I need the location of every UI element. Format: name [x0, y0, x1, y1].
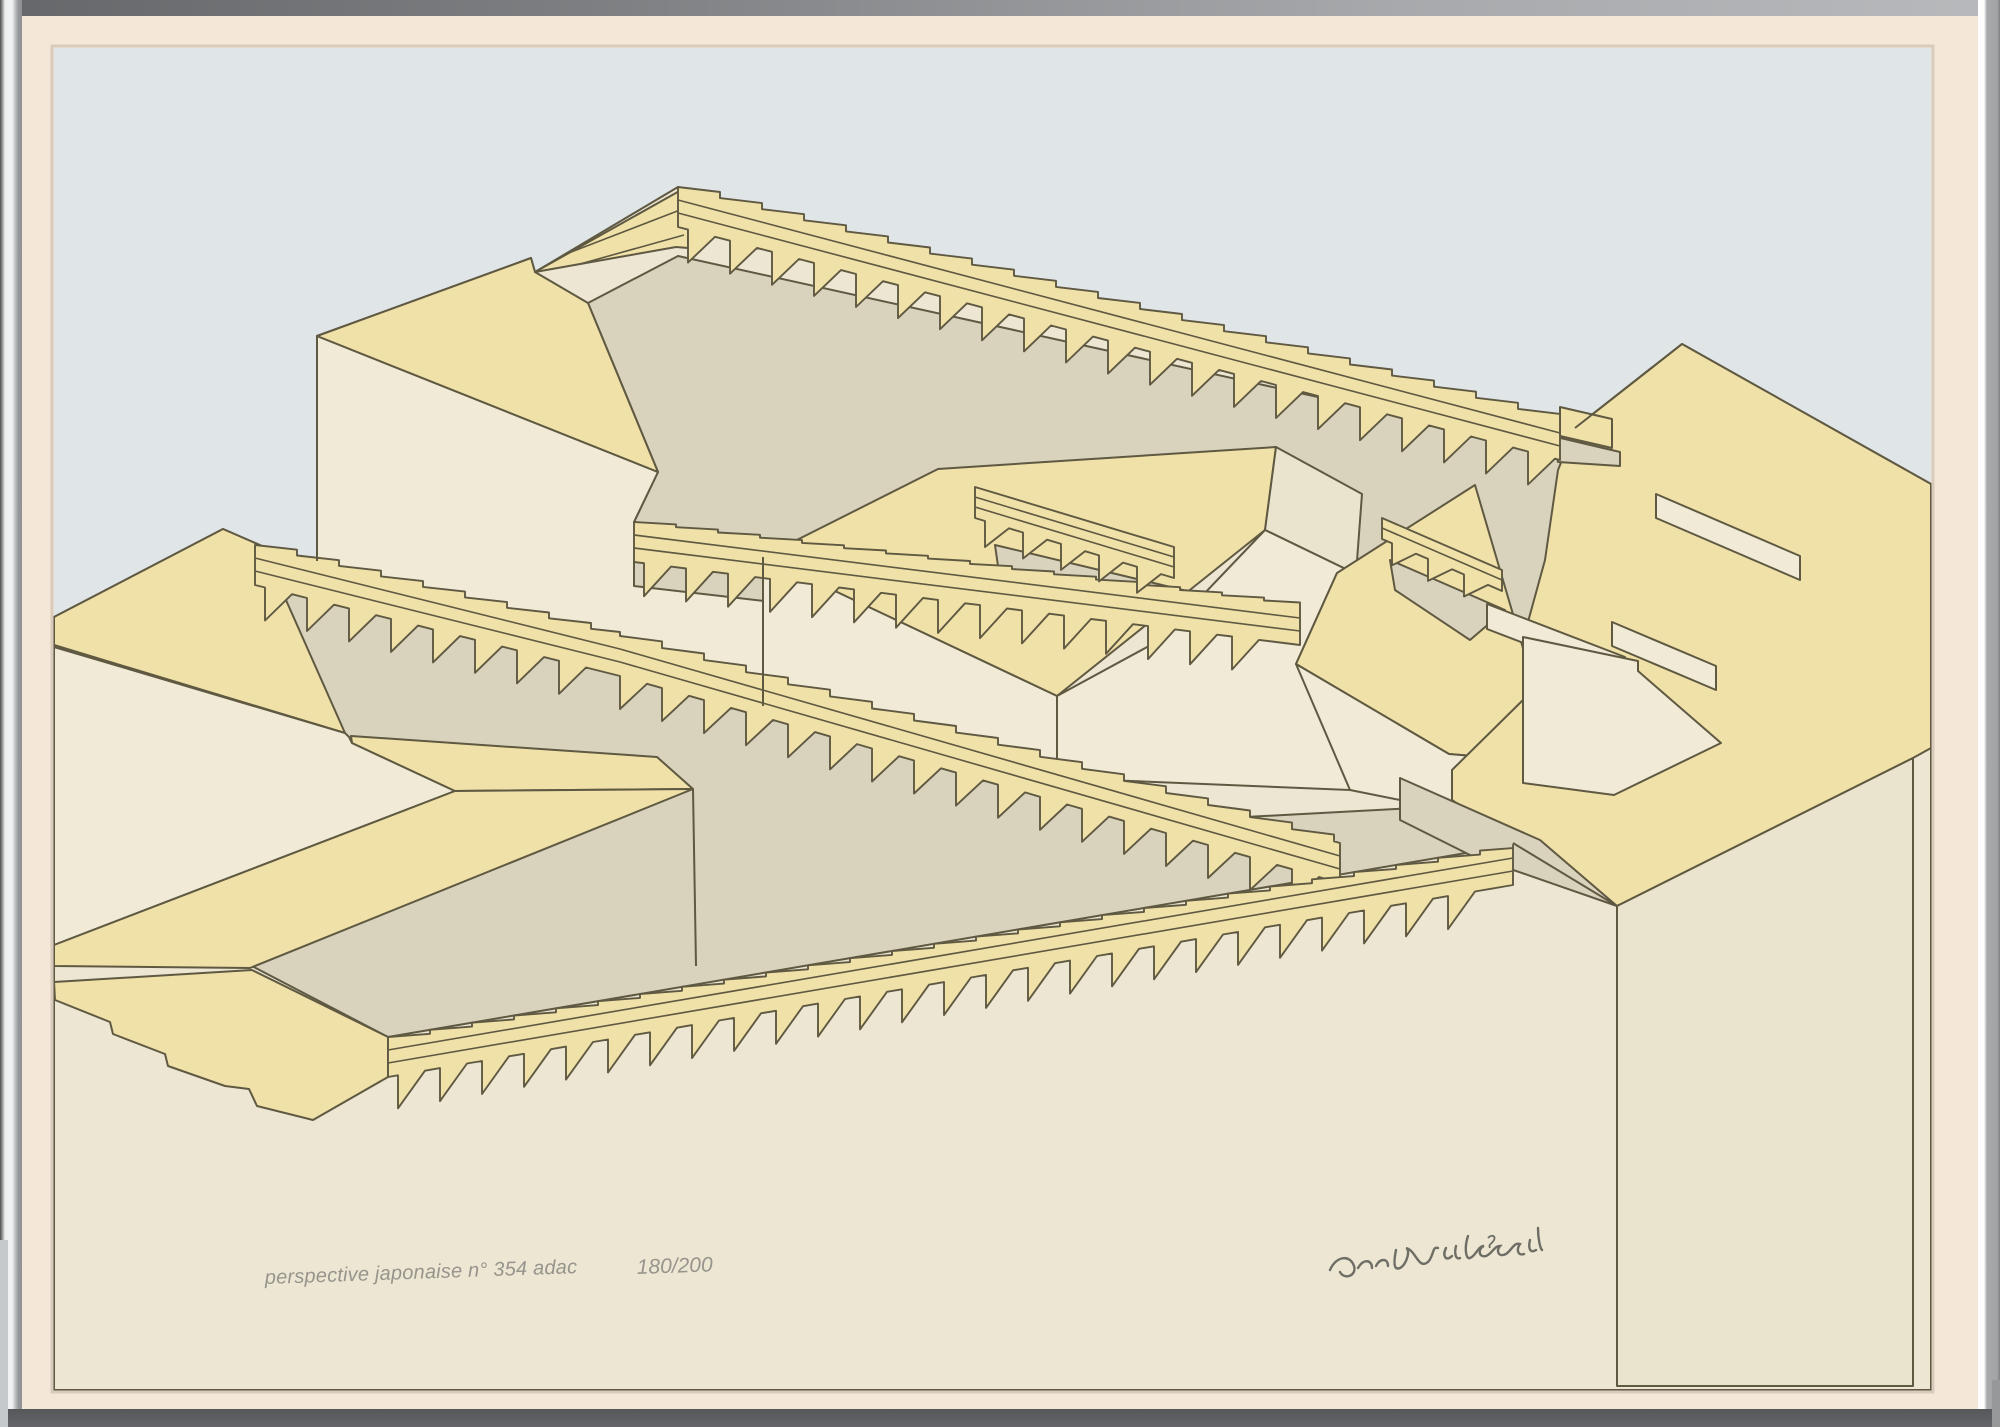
svg-text:180/200: 180/200: [636, 1253, 713, 1279]
